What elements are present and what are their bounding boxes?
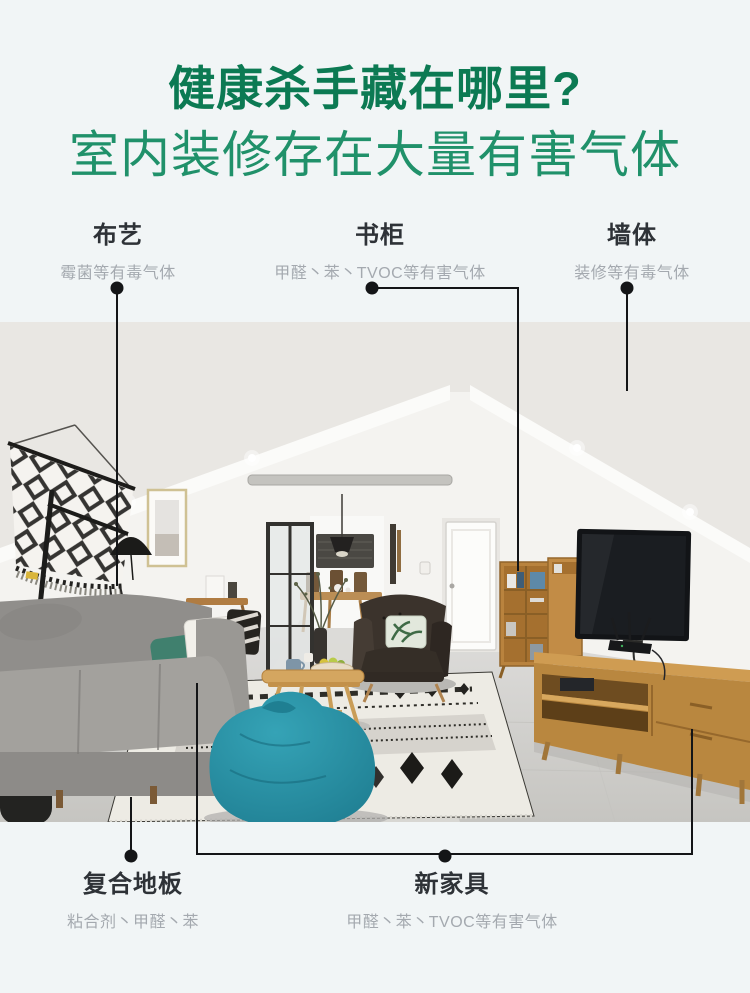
living-room-photo: [0, 322, 750, 822]
ceiling-vent: [248, 475, 452, 485]
callout-fabric-label: 布艺: [60, 215, 176, 250]
wall-switch: [420, 562, 430, 574]
callout-dot-wall: [621, 282, 634, 295]
callout-dot-fabric: [111, 282, 124, 295]
callout-dot-furniture: [439, 850, 452, 863]
callout-bookcase-label: 书柜: [274, 215, 485, 250]
callout-wall: 墙体 装修等有毒气体: [574, 215, 690, 283]
connector-line-furniture-h: [197, 853, 693, 855]
infographic-page: 健康杀手藏在哪里? 室内装修存在大量有害气体 布艺 霉菌等有毒气体 书柜 甲醛丶…: [0, 0, 750, 993]
leaf-pillow: [386, 616, 426, 648]
picture-frame: [148, 490, 186, 566]
callout-floorboard-desc: 粘合剂丶甲醛丶苯: [67, 908, 199, 932]
connector-line-bookcase-v: [517, 287, 519, 571]
connector-line-floorboard: [130, 797, 132, 850]
callout-fabric: 布艺 霉菌等有毒气体: [60, 215, 176, 283]
connector-line-wall: [626, 294, 628, 391]
callout-bookcase-desc: 甲醛丶苯丶TVOC等有害气体: [274, 259, 485, 283]
callout-floorboard-label: 复合地板: [67, 864, 199, 899]
connector-line-furniture-left: [196, 683, 198, 855]
door-handle: [450, 584, 455, 589]
connector-line-fabric: [116, 294, 118, 586]
callout-furniture: 新家具 甲醛丶苯丶TVOC等有害气体: [346, 864, 557, 932]
callout-fabric-desc: 霉菌等有毒气体: [60, 259, 176, 283]
callout-wall-label: 墙体: [574, 215, 690, 250]
connector-line-bookcase-h: [372, 287, 519, 289]
page-title: 健康杀手藏在哪里?: [0, 50, 750, 119]
callout-furniture-label: 新家具: [346, 864, 557, 899]
callout-bookcase: 书柜 甲醛丶苯丶TVOC等有害气体: [274, 215, 485, 283]
callout-floorboard: 复合地板 粘合剂丶甲醛丶苯: [67, 864, 199, 932]
connector-line-furniture-right: [691, 729, 693, 855]
callout-furniture-desc: 甲醛丶苯丶TVOC等有害气体: [346, 908, 557, 932]
page-subtitle: 室内装修存在大量有害气体: [0, 115, 750, 187]
callout-dot-floorboard: [125, 850, 138, 863]
callout-wall-desc: 装修等有毒气体: [574, 259, 690, 283]
armchair: [348, 594, 456, 702]
